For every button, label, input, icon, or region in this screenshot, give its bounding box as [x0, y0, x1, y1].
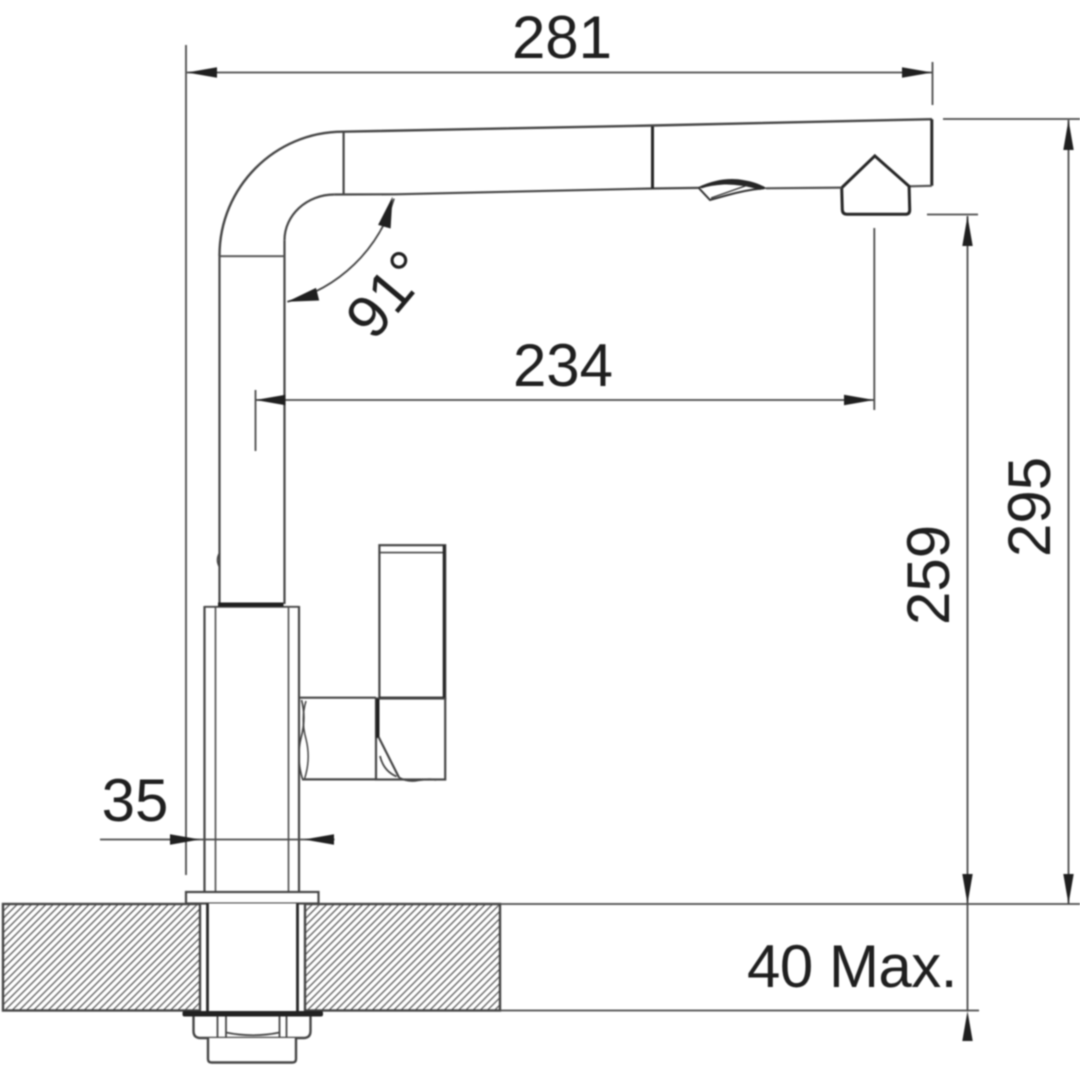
svg-text:40 Max.: 40 Max.: [747, 933, 957, 1000]
svg-text:234: 234: [513, 332, 613, 399]
svg-text:35: 35: [102, 767, 169, 834]
svg-text:259: 259: [895, 525, 962, 625]
svg-text:281: 281: [512, 4, 612, 71]
svg-text:295: 295: [996, 457, 1063, 557]
